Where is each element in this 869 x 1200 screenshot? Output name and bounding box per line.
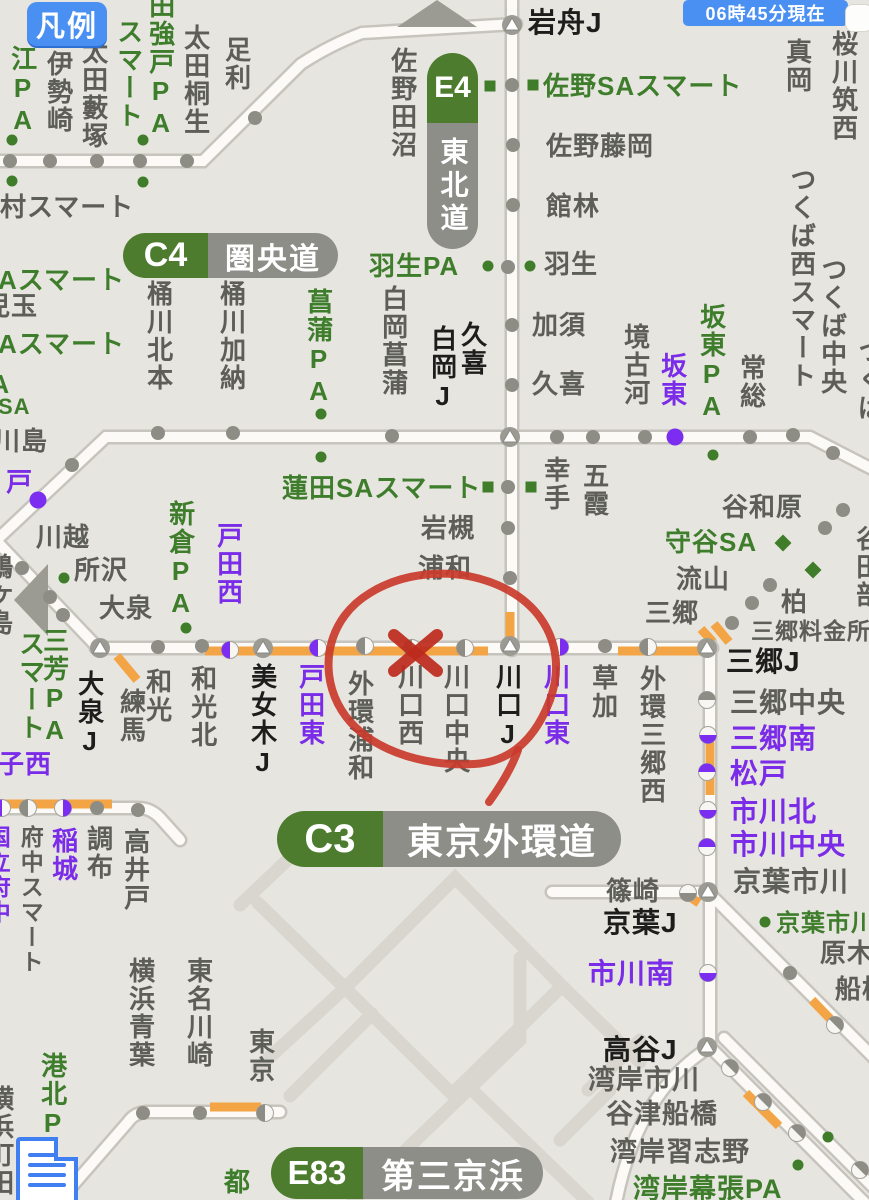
faint-road — [588, 1040, 640, 1090]
ramp-marker — [404, 640, 421, 657]
sa-marker — [775, 535, 792, 552]
pa-marker — [525, 261, 536, 272]
ic-marker — [586, 430, 600, 444]
pa-marker — [316, 452, 327, 463]
ic-marker — [385, 429, 399, 443]
smartic-marker — [485, 81, 496, 92]
ramp-marker — [700, 802, 717, 819]
faint-road — [345, 878, 562, 1094]
document-icon-line — [28, 1183, 66, 1187]
smartic-marker — [528, 80, 539, 91]
ramp-marker — [457, 640, 474, 657]
document-icon-fold — [54, 1137, 78, 1161]
route-badge-e83: E83第三京浜 — [271, 1147, 543, 1199]
ic-marker — [786, 428, 800, 442]
ic-marker — [90, 154, 104, 168]
ic-marker — [151, 640, 165, 654]
ic-marker — [743, 430, 757, 444]
route-badge-code: C3 — [277, 811, 383, 867]
ic-marker — [56, 608, 70, 622]
ic-marker — [505, 378, 519, 392]
ramp-marker — [699, 839, 716, 856]
ramp-marker — [310, 640, 327, 657]
ramp-marker — [222, 642, 239, 659]
pa-marker — [59, 573, 70, 584]
ic-marker — [783, 966, 797, 980]
ic-marker — [180, 154, 194, 168]
route-badge-name: 東北道 — [427, 123, 478, 249]
ic-marker — [506, 138, 520, 152]
ic-marker — [136, 1106, 150, 1120]
ic-marker — [725, 616, 739, 630]
route-badge-name: 東京外環道 — [383, 811, 621, 867]
legend-button[interactable]: 凡例 — [27, 2, 107, 46]
ic-marker — [638, 430, 652, 444]
road-casing — [614, 1047, 710, 1200]
ic-marker — [226, 426, 240, 440]
ramp-marker — [640, 639, 657, 656]
document-icon[interactable] — [16, 1137, 78, 1200]
route-badge-code: E83 — [271, 1147, 363, 1199]
ramp-marker — [20, 800, 37, 817]
ic-marker — [3, 154, 17, 168]
ic-marker — [151, 426, 165, 440]
pa-marker — [7, 135, 18, 146]
route-badge-e4: E4東北道 — [427, 53, 478, 249]
ic-marker — [745, 596, 759, 610]
pa-marker — [760, 917, 771, 928]
ic-marker — [763, 578, 777, 592]
ic-marker — [65, 458, 79, 472]
pa-marker — [483, 261, 494, 272]
traffic-map[interactable]: 江PA伊勢崎太田藪塚スマート田強戸PA太田桐生足利村スマート岩舟J佐野SAスマー… — [0, 0, 869, 1200]
ic-marker — [505, 78, 519, 92]
road-casing — [48, 1112, 280, 1200]
road — [0, 437, 869, 550]
route-badge-c4: C4圏央道 — [123, 233, 338, 278]
ramp-marker — [257, 1105, 274, 1122]
congestion-segment — [117, 656, 137, 680]
ic-marker — [90, 801, 104, 815]
ic-marker — [195, 639, 209, 653]
pa-marker — [181, 623, 192, 634]
ic-marker — [501, 480, 515, 494]
ramp-marker — [700, 965, 717, 982]
document-icon-line — [28, 1163, 66, 1167]
ic-marker — [501, 521, 515, 535]
pa-marker — [138, 177, 149, 188]
pa-marker — [823, 1132, 834, 1143]
ic-marker — [836, 503, 850, 517]
ic-marker — [248, 111, 262, 125]
ic-marker — [818, 521, 832, 535]
jct-triangle — [397, 0, 477, 27]
road-casing — [0, 437, 869, 550]
pa-marker — [793, 1160, 804, 1171]
sa-marker — [805, 562, 822, 579]
pa-marker — [708, 450, 719, 461]
ic-marker-purple — [30, 492, 47, 509]
ic-marker — [43, 590, 57, 604]
pa-marker — [316, 409, 327, 420]
document-icon-line — [28, 1173, 66, 1177]
route-badge-name: 圏央道 — [208, 233, 338, 278]
faint-road — [560, 1090, 610, 1140]
smartic-marker — [483, 482, 494, 493]
ic-marker — [193, 1106, 207, 1120]
route-badge-c3: C3東京外環道 — [277, 811, 621, 867]
ic-marker — [506, 198, 520, 212]
ic-marker — [598, 639, 612, 653]
ic-marker — [826, 446, 840, 460]
pa-marker — [7, 176, 18, 187]
ic-marker — [505, 318, 519, 332]
ramp-marker — [700, 727, 717, 744]
smartic-marker — [526, 482, 537, 493]
route-badge-code: C4 — [123, 233, 208, 278]
ramp-marker — [55, 800, 72, 817]
ic-marker — [501, 260, 515, 274]
ic-marker-purple — [667, 429, 684, 446]
pa-marker — [138, 135, 149, 146]
timestamp-badge: 06時45分現在 — [683, 0, 848, 26]
corner-tab[interactable] — [845, 4, 869, 32]
ic-marker — [15, 561, 29, 575]
ramp-marker — [699, 692, 716, 709]
ramp-marker — [680, 885, 697, 902]
route-badge-name: 第三京浜 — [363, 1147, 543, 1199]
ic-marker — [550, 430, 564, 444]
route-badge-code: E4 — [427, 53, 478, 123]
ic-marker — [131, 803, 145, 817]
ic-marker — [43, 154, 57, 168]
ramp-marker — [552, 639, 569, 656]
ramp-marker — [699, 764, 716, 781]
ic-marker — [503, 571, 517, 585]
road — [48, 1112, 280, 1200]
ic-marker — [133, 154, 147, 168]
faint-road — [258, 903, 345, 1068]
ramp-marker — [357, 638, 374, 655]
